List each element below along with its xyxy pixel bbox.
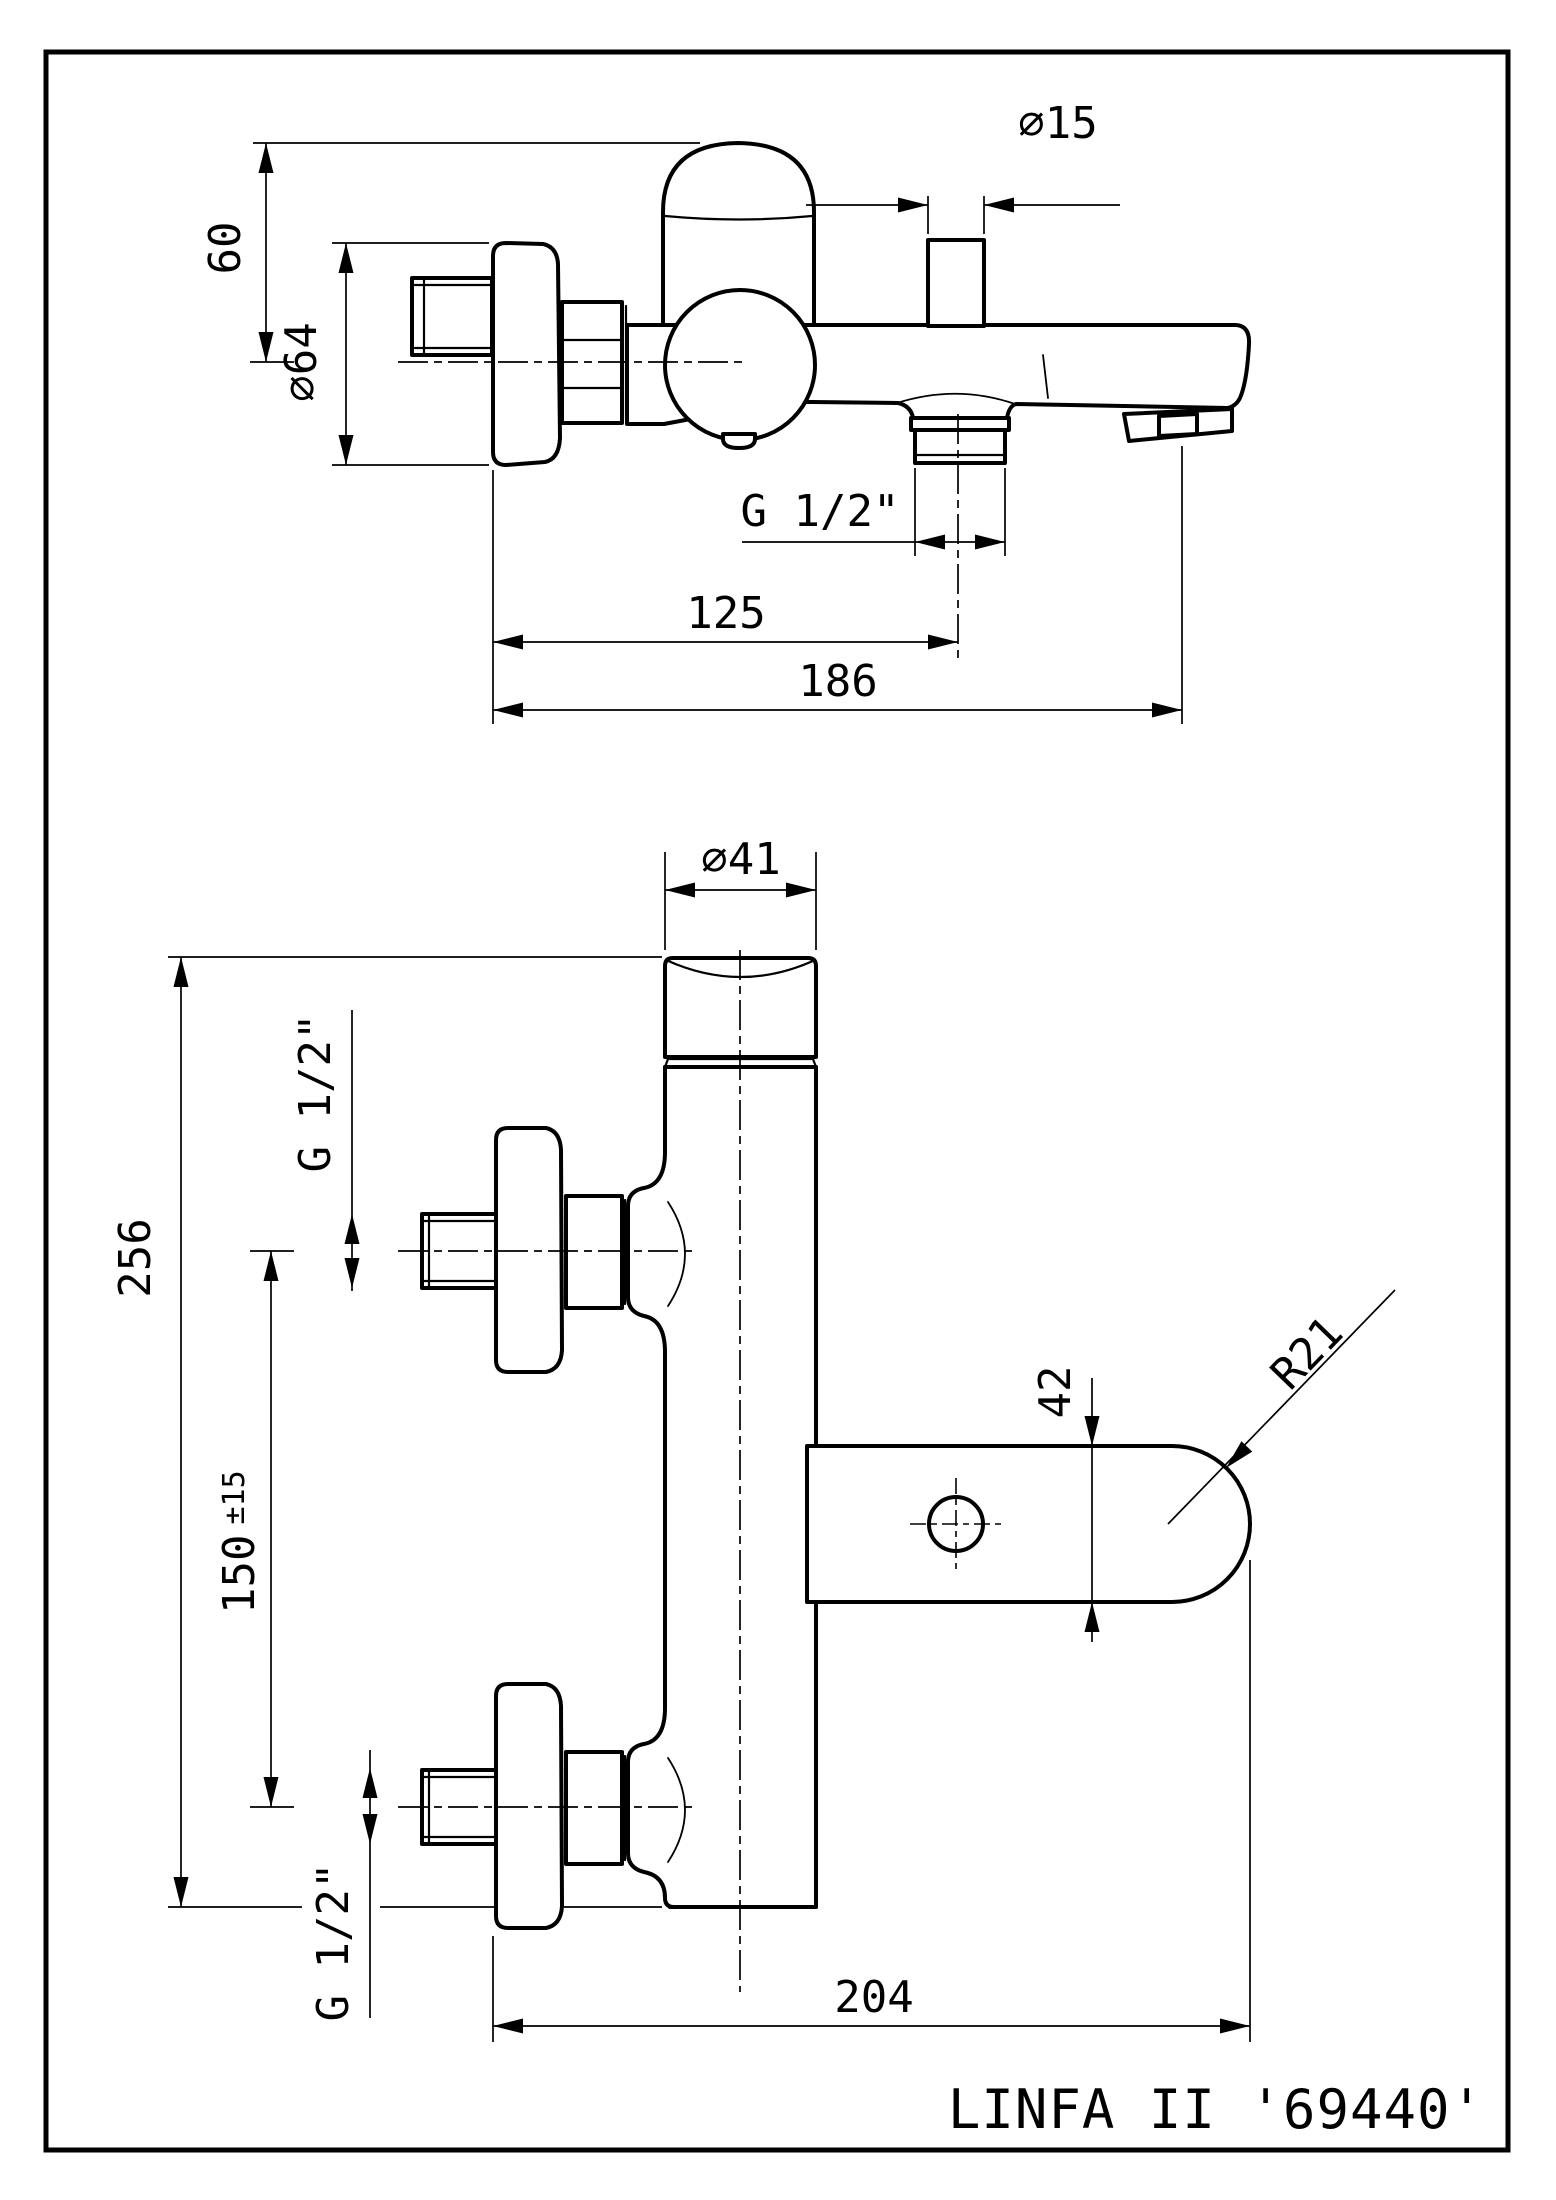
aerator-notch — [1159, 414, 1197, 436]
dim-dia41-label: ∅41 — [701, 834, 780, 885]
outlet-thread-stub — [915, 430, 1005, 463]
dim-125-label: 125 — [686, 588, 765, 639]
dim-256-label: 256 — [110, 1218, 161, 1297]
dim-outlet-thread-label: G 1/2" — [741, 486, 900, 537]
upper-escutcheon — [496, 1128, 562, 1372]
upper-hex-nut — [566, 1196, 622, 1308]
dim-204-label: 204 — [834, 1972, 913, 2023]
dim-42-label: 42 — [1030, 1366, 1081, 1419]
lever-handle — [807, 1446, 1250, 1602]
dim-inlet-thread-top-label: G 1/2" — [290, 1014, 341, 1173]
dim-60-label: 60 — [200, 222, 251, 275]
handle-knob-circle — [665, 290, 815, 440]
lever-tip-side — [723, 434, 755, 448]
dim-inlet-thread-bottom-label: G 1/2" — [308, 1863, 359, 2022]
escutcheon-side — [493, 243, 560, 465]
dim-186-label: 186 — [798, 656, 877, 707]
diverter-stub — [928, 240, 984, 326]
title-block: LINFA II '69440' — [948, 2078, 1484, 2141]
technical-drawing: 60 ∅64 ∅15 G 1/2" 125 — [0, 0, 1556, 2200]
lower-escutcheon — [496, 1684, 562, 1928]
drawing-title: LINFA II '69440' — [948, 2078, 1484, 2141]
dim-dia64-label: ∅64 — [276, 322, 327, 401]
lower-hex-nut — [566, 1752, 622, 1864]
drawing-sheet: 60 ∅64 ∅15 G 1/2" 125 — [0, 0, 1556, 2200]
dim-dia15-label: ∅15 — [1018, 98, 1097, 149]
